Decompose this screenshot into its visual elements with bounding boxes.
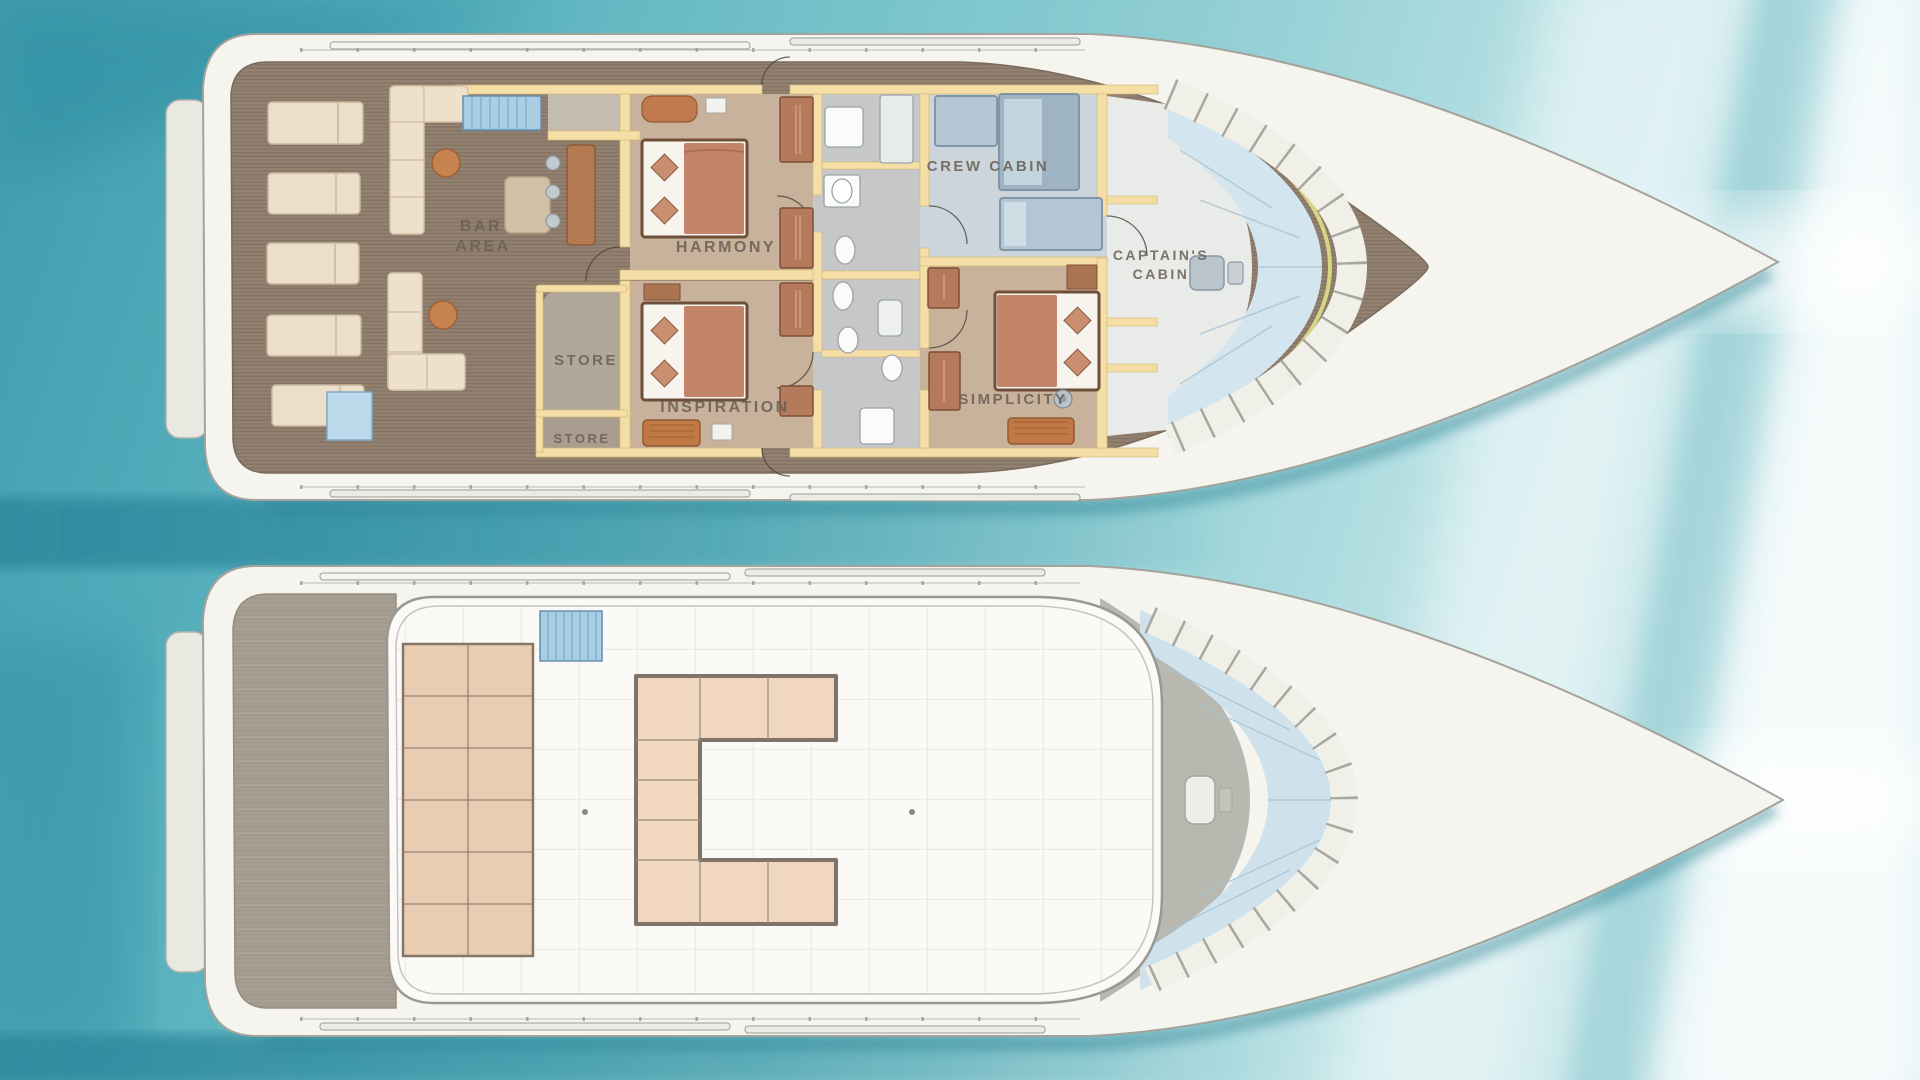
round-table bbox=[429, 301, 457, 329]
bar-stools bbox=[546, 156, 560, 228]
harmony-bed bbox=[642, 140, 747, 237]
label-captain-line2: CABIN bbox=[1133, 266, 1190, 282]
label-inspiration: INSPIRATION bbox=[660, 399, 789, 416]
shower-tray bbox=[860, 408, 894, 444]
swim-platform bbox=[166, 100, 208, 438]
toilet bbox=[833, 282, 853, 310]
sun-lounger bbox=[267, 315, 361, 356]
sun-lounger bbox=[268, 173, 360, 214]
ac-unit bbox=[712, 424, 732, 440]
yacht-deck-plan-illustration: BAR AREA STORE STORE HARMONY INSPIRATION… bbox=[0, 0, 1920, 1080]
label-captain-line1: CAPTAIN'S bbox=[1113, 247, 1209, 263]
label-bar-line2: AREA bbox=[455, 238, 510, 255]
simplicity-bench bbox=[1008, 418, 1074, 444]
swim-platform bbox=[166, 632, 208, 972]
sink-basin bbox=[832, 179, 852, 203]
label-bar-line1: BAR bbox=[460, 218, 502, 235]
round-table bbox=[432, 149, 460, 177]
bathtub bbox=[878, 300, 902, 336]
water-dark-left-edge bbox=[0, 640, 140, 1060]
toilet bbox=[835, 236, 855, 264]
harmony-headboard-bolster bbox=[642, 96, 697, 122]
deck-plan-graphic: BAR AREA STORE STORE HARMONY INSPIRATION… bbox=[0, 0, 1920, 1080]
aft-deck-wood bbox=[233, 594, 396, 1008]
staircase bbox=[540, 611, 602, 661]
shower-door bbox=[880, 95, 913, 163]
label-store-upper: STORE bbox=[554, 352, 618, 369]
label-simplicity: SIMPLICITY bbox=[958, 391, 1067, 408]
sun-lounger bbox=[267, 243, 359, 284]
ac-unit bbox=[706, 98, 726, 113]
deck-cleat bbox=[909, 809, 915, 815]
bar-counter bbox=[567, 145, 595, 245]
deck-cleat bbox=[582, 809, 588, 815]
sun-lounger bbox=[268, 102, 363, 144]
sunpad bbox=[403, 644, 533, 956]
bar-back-counter bbox=[505, 177, 550, 233]
toilet bbox=[882, 355, 902, 381]
inspiration-bench bbox=[643, 420, 700, 446]
shower-tray bbox=[825, 107, 863, 147]
store-room-floor bbox=[543, 292, 620, 410]
label-harmony: HARMONY bbox=[676, 239, 776, 256]
stern-hatch bbox=[327, 392, 372, 440]
label-store-lower: STORE bbox=[553, 431, 610, 446]
label-crew-cabin: CREW CABIN bbox=[927, 158, 1050, 175]
toilet bbox=[838, 327, 858, 353]
staircase bbox=[463, 96, 541, 130]
